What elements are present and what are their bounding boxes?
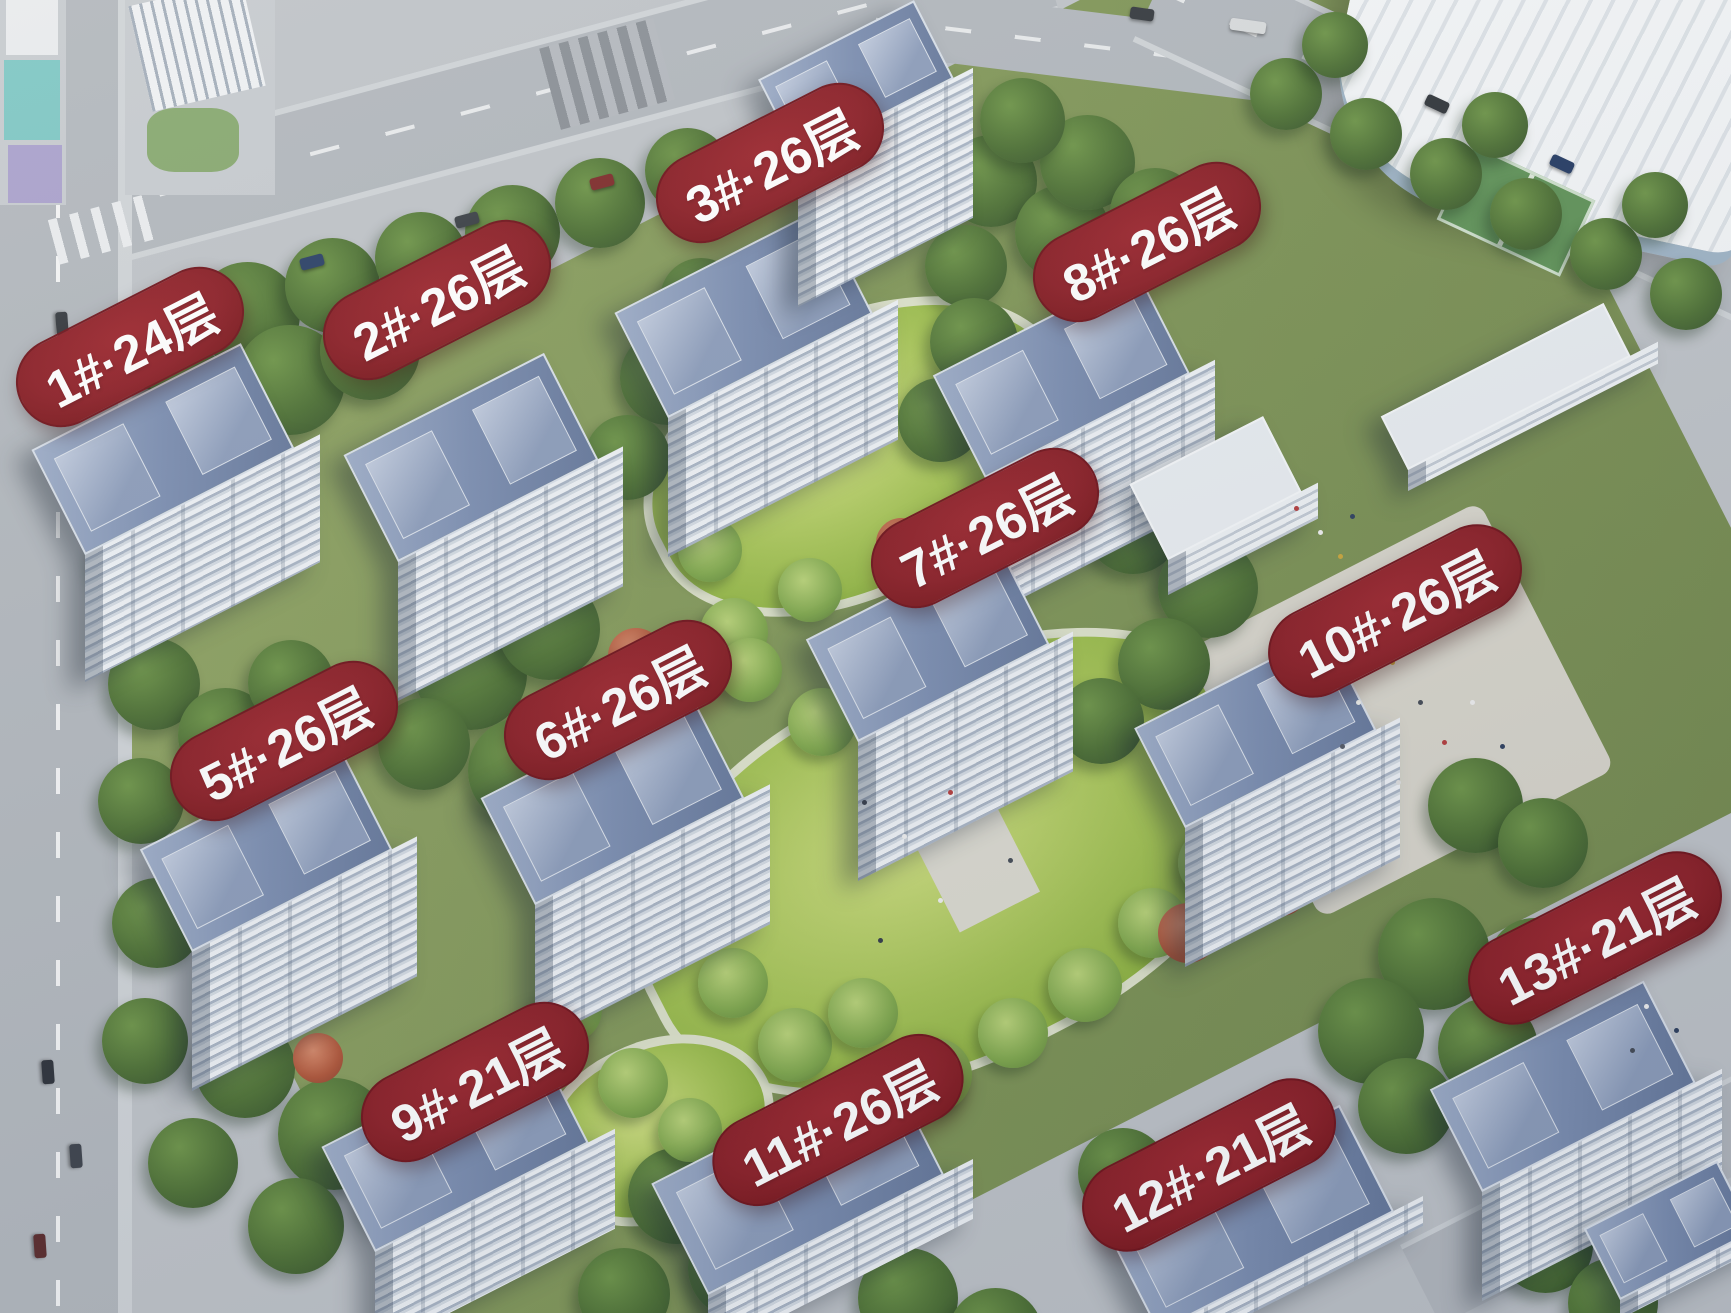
masterplan-rendering: 1#·24层 2#·26层 3#·26层 8#·26层 7#·26层 10#·2… (0, 0, 1731, 1313)
tree (1498, 798, 1588, 888)
tree (1462, 92, 1528, 158)
car (33, 1234, 47, 1259)
city-tower (128, 0, 265, 112)
palm-tree (598, 1048, 668, 1118)
pedestrian-dot (1356, 700, 1361, 705)
roof-ridge (1669, 1177, 1731, 1248)
city-building (8, 145, 62, 203)
pedestrian-dot (938, 898, 943, 903)
car (41, 1060, 55, 1085)
palm-tree (828, 978, 898, 1048)
pedestrian-dot (1350, 514, 1355, 519)
roof-ridge (365, 430, 470, 539)
pedestrian-dot (1644, 1004, 1649, 1009)
pedestrian-dot (948, 790, 953, 795)
roof-ridge (858, 18, 937, 98)
pedestrian-dot (1674, 1028, 1679, 1033)
tree (948, 1288, 1043, 1313)
palm-tree (698, 948, 768, 1018)
tree (1650, 258, 1722, 330)
city-block (0, 0, 66, 205)
pedestrian-dot (1318, 530, 1323, 535)
tree (102, 998, 188, 1084)
palm-tree (1048, 948, 1122, 1022)
tree (1490, 178, 1562, 250)
tree (1330, 98, 1402, 170)
pedestrian-dot (902, 834, 907, 839)
pedestrian-dot (1340, 744, 1345, 749)
pedestrian-dot (1338, 554, 1343, 559)
red-tree (293, 1033, 343, 1083)
roof-ridge (1452, 1061, 1560, 1169)
roof-ridge (161, 824, 264, 929)
pedestrian-dot (1418, 700, 1423, 705)
roof-ridge (1566, 1004, 1674, 1112)
tree (555, 158, 645, 248)
tree (1622, 172, 1688, 238)
pedestrian-dot (1500, 744, 1505, 749)
pedestrian-dot (1008, 858, 1013, 863)
city-building (4, 60, 60, 140)
tree (1302, 12, 1368, 78)
pedestrian-dot (1294, 506, 1299, 511)
roof-ridge (1155, 704, 1254, 806)
palm-tree (758, 1008, 832, 1082)
roof-ridge (827, 616, 927, 720)
roof-ridge (165, 366, 272, 475)
city-block (125, 0, 275, 195)
city-green (147, 108, 239, 172)
palm-tree (978, 998, 1048, 1068)
roof-ridge (955, 349, 1060, 455)
pedestrian-dot (1630, 1048, 1635, 1053)
roof-ridge (54, 423, 161, 532)
roof-ridge (1599, 1213, 1668, 1284)
roof-ridge (472, 376, 577, 485)
tree (248, 1178, 344, 1274)
pedestrian-dot (1442, 740, 1447, 745)
tree (925, 225, 1007, 307)
roof-ridge (503, 771, 611, 881)
tree (148, 1118, 238, 1208)
pedestrian-dot (862, 800, 867, 805)
pedestrian-dot (878, 938, 883, 943)
pedestrian-dot (1396, 780, 1401, 785)
roof-ridge (636, 287, 742, 395)
palm-tree (778, 558, 842, 622)
pedestrian-dot (1470, 700, 1475, 705)
car (69, 1144, 83, 1169)
city-building (6, 0, 58, 55)
tree (980, 78, 1065, 163)
